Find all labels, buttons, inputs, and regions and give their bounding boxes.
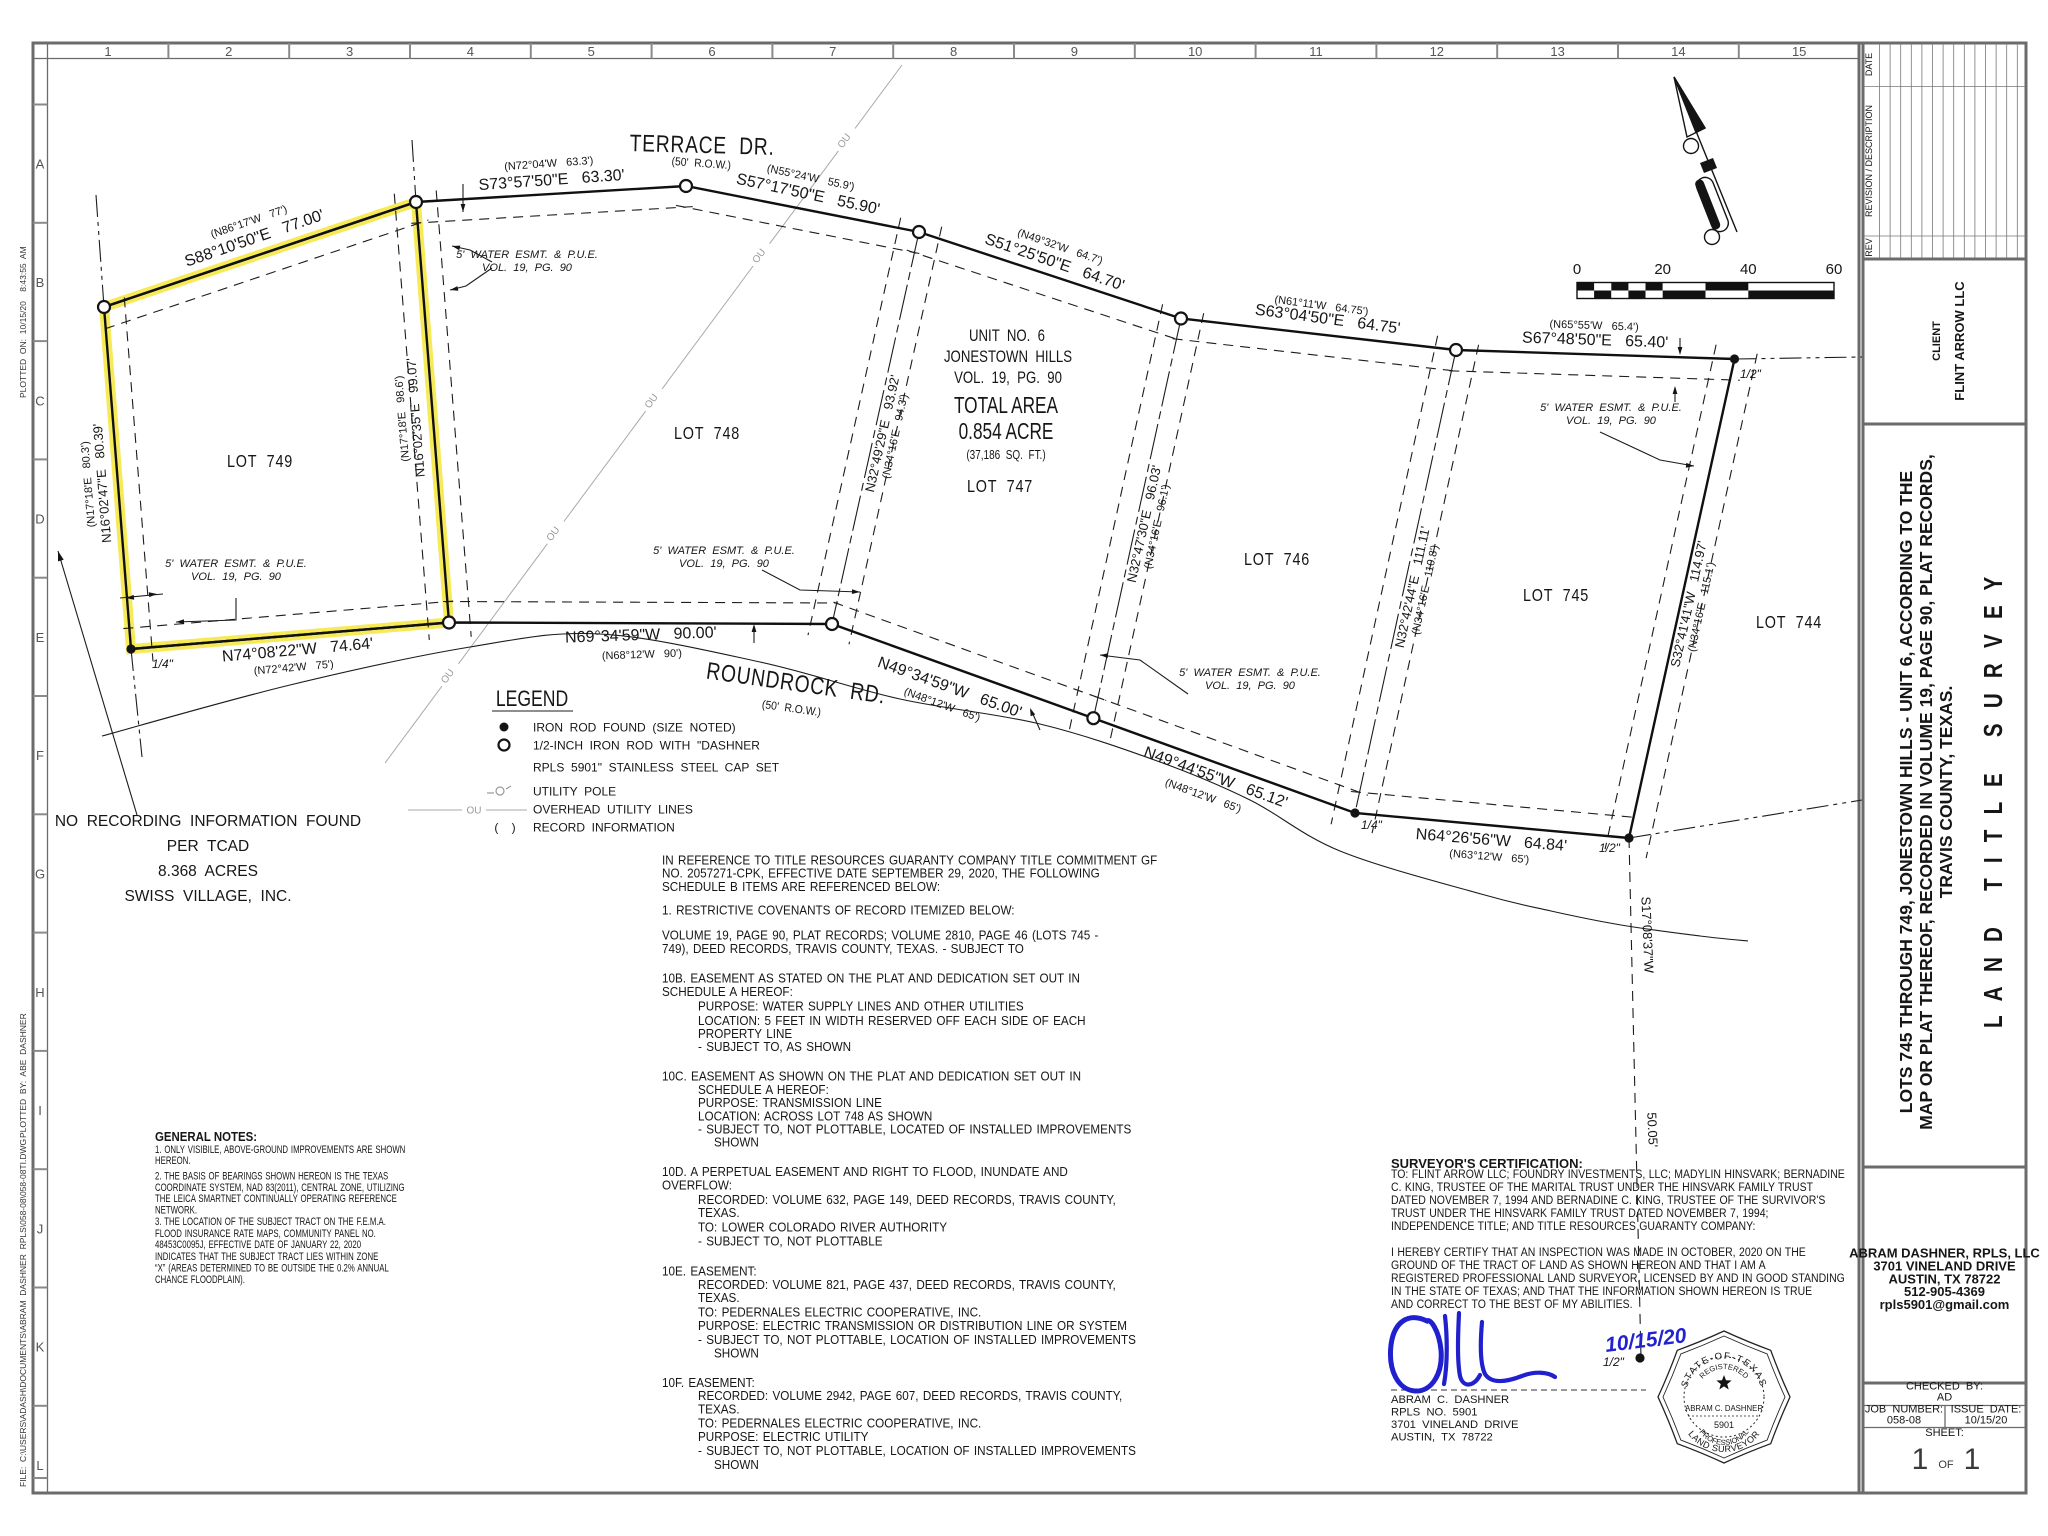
svg-text:RPLS NO. 5901: RPLS NO. 5901: [1391, 1407, 1477, 1419]
svg-text:5: 5: [588, 44, 595, 59]
svg-text:I: I: [38, 1103, 42, 1118]
svg-text:H: H: [35, 985, 44, 1000]
svg-text:- SUBJECT TO, NOT PLOTTABLE: - SUBJECT TO, NOT PLOTTABLE: [698, 1234, 883, 1249]
svg-text:1. RESTRICTIVE COVENANTS OF RE: 1. RESTRICTIVE COVENANTS OF RECORD ITEMI…: [662, 903, 1015, 918]
svg-text:1: 1: [1912, 1443, 1929, 1476]
svg-text:1/4": 1/4": [152, 657, 174, 671]
svg-text:TEXAS.: TEXAS.: [698, 1290, 740, 1305]
svg-text:G: G: [35, 867, 45, 882]
svg-text:749), DEED RECORDS, TRAVIS COU: 749), DEED RECORDS, TRAVIS COUNTY, TEXAS…: [662, 941, 1024, 956]
svg-text:HEREON.: HEREON.: [155, 1155, 190, 1168]
svg-text:SCHEDULE A HEREOF:: SCHEDULE A HEREOF:: [662, 984, 793, 999]
svg-text:6: 6: [708, 44, 715, 59]
svg-text:LOT 749: LOT 749: [227, 452, 293, 472]
svg-text:UNIT NO. 6: UNIT NO. 6: [969, 327, 1045, 346]
svg-text:13: 13: [1550, 44, 1564, 59]
svg-text:TOTAL AREA: TOTAL AREA: [954, 394, 1058, 419]
svg-text:F: F: [36, 748, 44, 763]
svg-text:SCHEDULE B ITEMS ARE REFERENCE: SCHEDULE B ITEMS ARE REFERENCED BELOW:: [662, 879, 940, 894]
svg-text:0.854 ACRE: 0.854 ACRE: [959, 420, 1054, 445]
svg-text:GROUND OF THE TRACT OF LAND AS: GROUND OF THE TRACT OF LAND AS SHOWN HER…: [1391, 1259, 1766, 1272]
svg-text:3: 3: [346, 44, 353, 59]
svg-text:1/2": 1/2": [1603, 1355, 1625, 1369]
svg-text:20: 20: [1654, 261, 1671, 278]
svg-text:RECORDED: VOLUME 821, PAGE 437: RECORDED: VOLUME 821, PAGE 437, DEED REC…: [698, 1277, 1116, 1292]
svg-text:5' WATER ESMT. & P.U.E.: 5' WATER ESMT. & P.U.E.: [456, 249, 598, 261]
svg-text:5' WATER ESMT. & P.U.E.: 5' WATER ESMT. & P.U.E.: [1540, 402, 1682, 414]
svg-text:VOL. 19, PG. 90: VOL. 19, PG. 90: [679, 558, 770, 570]
svg-text:LEGEND: LEGEND: [496, 687, 568, 711]
svg-text:8: 8: [950, 44, 957, 59]
svg-text:LOT 747: LOT 747: [967, 477, 1033, 497]
svg-text:50.05': 50.05': [1644, 1112, 1661, 1148]
svg-text:5' WATER ESMT. & P.U.E.: 5' WATER ESMT. & P.U.E.: [1179, 667, 1321, 679]
svg-text:IRON ROD FOUND (SIZE NOTED: IRON ROD FOUND (SIZE NOTED): [533, 721, 736, 735]
svg-text:SWISS VILLAGE, INC.: SWISS VILLAGE, INC.: [124, 888, 291, 905]
svg-text:- SUBJECT TO, NOT PLOTTABLE, L: - SUBJECT TO, NOT PLOTTABLE, LOCATED OF …: [698, 1122, 1131, 1137]
svg-text:PURPOSE: ELECTRIC TRANSMISSION: PURPOSE: ELECTRIC TRANSMISSION OR DISTRI…: [698, 1319, 1127, 1334]
svg-text:C. KING, TRUSTEE OF THE MARITA: C. KING, TRUSTEE OF THE MARITAL TRUST UN…: [1391, 1181, 1813, 1194]
svg-text:40: 40: [1740, 261, 1757, 278]
svg-text:CHANCE FLOODPLAIN).: CHANCE FLOODPLAIN).: [155, 1274, 245, 1287]
svg-text:SHOWN: SHOWN: [714, 1457, 759, 1472]
svg-text:TERRACE DR.: TERRACE DR.: [629, 129, 775, 160]
svg-text:TO: FLINT ARROW LLC; FOUNDRY I: TO: FLINT ARROW LLC; FOUNDRY INVESTMENTS…: [1391, 1168, 1845, 1181]
svg-text:PER TCAD: PER TCAD: [167, 838, 249, 855]
svg-text:GENERAL NOTES:: GENERAL NOTES:: [155, 1129, 257, 1144]
svg-text:3701 VINELAND DRIVE: 3701 VINELAND DRIVE: [1391, 1419, 1518, 1431]
svg-text:1. ONLY VISIBILE, ABOVE-GROUND: 1. ONLY VISIBILE, ABOVE-GROUND IMPROVEME…: [155, 1144, 405, 1157]
svg-text:- SUBJECT TO, NOT PLOTTABLE, L: - SUBJECT TO, NOT PLOTTABLE, LOCATION OF…: [698, 1443, 1136, 1458]
svg-text:OVERHEAD UTILITY LINES: OVERHEAD UTILITY LINES: [533, 803, 693, 817]
svg-text:(37,186 SQ. FT.): (37,186 SQ. FT.): [966, 449, 1046, 462]
svg-text:LOTS 745 THROUGH 749, JONESTOW: LOTS 745 THROUGH 749, JONESTOWN HILLS - …: [1896, 471, 1916, 1113]
svg-text:VOL. 19, PG. 90: VOL. 19, PG. 90: [1566, 415, 1657, 427]
svg-text:VOL. 19, PG. 90: VOL. 19, PG. 90: [482, 262, 573, 274]
svg-text:FLINT ARROW LLC: FLINT ARROW LLC: [1952, 281, 1967, 401]
svg-text:IN THE STATE OF TEXAS; AND THA: IN THE STATE OF TEXAS; AND THAT THE INFO…: [1391, 1285, 1813, 1298]
svg-text:60: 60: [1826, 261, 1843, 278]
svg-text:B: B: [36, 275, 45, 290]
svg-text:DATED NOVEMBER 7, 1994 AND BER: DATED NOVEMBER 7, 1994 AND BERNADINE C. …: [1391, 1194, 1825, 1207]
svg-text:PURPOSE: ELECTRIC UTILITY: PURPOSE: ELECTRIC UTILITY: [698, 1429, 868, 1444]
svg-text:15: 15: [1792, 44, 1806, 59]
svg-text:J: J: [37, 1221, 44, 1236]
svg-text:OVERFLOW:: OVERFLOW:: [662, 1178, 732, 1193]
svg-text:K: K: [36, 1340, 45, 1355]
svg-text:RPLS 5901" STAINLESS STEEL: RPLS 5901" STAINLESS STEEL CAP SET: [533, 761, 780, 775]
svg-text:TRAVIS COUNTY, TEXAS.: TRAVIS COUNTY, TEXAS.: [1936, 686, 1956, 899]
svg-text:11: 11: [1309, 44, 1323, 59]
svg-text:rpls5901@gmail.com: rpls5901@gmail.com: [1880, 1297, 2010, 1312]
svg-text:NETWORK.: NETWORK.: [155, 1204, 197, 1217]
svg-text:LOT 744: LOT 744: [1756, 613, 1822, 633]
svg-text:REV: REV: [1864, 238, 1874, 257]
svg-text:RECORD INFORMATION: RECORD INFORMATION: [533, 821, 675, 835]
svg-text:12: 12: [1430, 44, 1444, 59]
svg-text:SHOWN: SHOWN: [714, 1346, 759, 1361]
svg-text:UTILITY POLE: UTILITY POLE: [533, 785, 616, 799]
svg-text:RECORDED: VOLUME 2942, PAGE 60: RECORDED: VOLUME 2942, PAGE 607, DEED RE…: [698, 1388, 1122, 1403]
svg-text:TEXAS.: TEXAS.: [698, 1402, 740, 1417]
svg-text:OU: OU: [467, 806, 482, 817]
svg-text:DATE: DATE: [1864, 53, 1874, 76]
svg-text:14: 14: [1671, 44, 1685, 59]
svg-text:LOT 745: LOT 745: [1523, 586, 1589, 606]
svg-text:- SUBJECT TO, AS SHOWN: - SUBJECT TO, AS SHOWN: [698, 1040, 851, 1055]
svg-text:PLOTTED BY: ABE DASHNER: PLOTTED BY: ABE DASHNER: [18, 1013, 28, 1138]
svg-text:LOT 746: LOT 746: [1244, 550, 1310, 570]
svg-text:VOL. 19, PG. 90: VOL. 19, PG. 90: [954, 369, 1062, 388]
svg-text:9: 9: [1071, 44, 1078, 59]
svg-text:TO: PEDERNALES ELECTRIC COOPER: TO: PEDERNALES ELECTRIC COOPERATIVE, INC…: [698, 1305, 981, 1320]
svg-text:RECORDED: VOLUME 632, PAGE 149: RECORDED: VOLUME 632, PAGE 149, DEED REC…: [698, 1192, 1116, 1207]
svg-text:CLIENT: CLIENT: [1931, 321, 1943, 361]
svg-text:ABRAM C. DASHNER: ABRAM C. DASHNER: [1685, 1404, 1763, 1413]
svg-text:JONESTOWN HILLS: JONESTOWN HILLS: [944, 348, 1072, 367]
svg-text:5' WATER ESMT. & P.U.E.: 5' WATER ESMT. & P.U.E.: [165, 558, 307, 570]
svg-text:INDEPENDENCE TITLE; AND TITLE: INDEPENDENCE TITLE; AND TITLE RESOURCES …: [1391, 1220, 1755, 1233]
svg-text:10: 10: [1188, 44, 1202, 59]
svg-text:D: D: [35, 512, 44, 527]
svg-text:TRUST UNDER THE HINSVARK FAMIL: TRUST UNDER THE HINSVARK FAMILY TRUST DA…: [1391, 1207, 1768, 1220]
svg-text:REVISION / DESCRIPTION: REVISION / DESCRIPTION: [1864, 105, 1874, 217]
svg-text:SHEET:: SHEET:: [1925, 1427, 1964, 1439]
svg-text:AD: AD: [1937, 1392, 1952, 1404]
svg-text:2: 2: [225, 44, 232, 59]
svg-text:TO: LOWER COLORADO RIVER AUTHO: TO: LOWER COLORADO RIVER AUTHORITY: [698, 1220, 947, 1235]
svg-text:- SUBJECT TO, NOT PLOTTABLE, L: - SUBJECT TO, NOT PLOTTABLE, LOCATION OF…: [698, 1333, 1136, 1348]
svg-text:NO RECORDING INFORMATION FO: NO RECORDING INFORMATION FOUND: [55, 813, 361, 830]
svg-text:REGISTERED PROFESSIONAL LAND S: REGISTERED PROFESSIONAL LAND SURVEYOR, L…: [1391, 1272, 1845, 1285]
svg-text:AND CORRECT TO THE BEST OF MY: AND CORRECT TO THE BEST OF MY ABILITIES.: [1391, 1298, 1633, 1311]
svg-text:058-08: 058-08: [1887, 1415, 1921, 1427]
svg-text:E: E: [36, 630, 45, 645]
svg-text:1/2-INCH IRON ROD WITH "DA: 1/2-INCH IRON ROD WITH "DASHNER: [533, 739, 760, 753]
svg-text:C: C: [35, 393, 44, 408]
svg-text:ABRAM C. DASHNER: ABRAM C. DASHNER: [1391, 1394, 1509, 1406]
svg-text:I HEREBY CERTIFY THAT AN INSPE: I HEREBY CERTIFY THAT AN INSPECTION WAS …: [1391, 1246, 1806, 1259]
svg-text:SHOWN: SHOWN: [714, 1135, 759, 1150]
svg-text:MAP OR PLAT THEREOF, RECORDED: MAP OR PLAT THEREOF, RECORDED IN VOLUME …: [1916, 454, 1936, 1129]
svg-text:PURPOSE: WATER SUPPLY LINES AN: PURPOSE: WATER SUPPLY LINES AND OTHER UT…: [698, 999, 1024, 1014]
svg-text:VOL. 19, PG. 90: VOL. 19, PG. 90: [191, 571, 282, 583]
svg-text:0: 0: [1573, 261, 1581, 278]
svg-text:1: 1: [104, 44, 111, 59]
svg-text:1/2": 1/2": [1599, 841, 1621, 855]
svg-text:1/2": 1/2": [1740, 367, 1762, 381]
svg-text:L A N D T I T L E S U R V: L A N D T I T L E S U R V E Y: [1978, 572, 2008, 1028]
svg-text:5' WATER ESMT. & P.U.E.: 5' WATER ESMT. & P.U.E.: [653, 545, 795, 557]
svg-text:A: A: [36, 157, 45, 172]
svg-text:7: 7: [829, 44, 836, 59]
svg-text:AUSTIN, TX 78722: AUSTIN, TX 78722: [1391, 1432, 1493, 1444]
svg-text:1/4": 1/4": [1361, 818, 1383, 832]
svg-text:VOL. 19, PG. 90: VOL. 19, PG. 90: [1205, 680, 1296, 692]
svg-text:1: 1: [1964, 1443, 1981, 1476]
svg-text:LOT 748: LOT 748: [674, 424, 740, 444]
svg-text:5901: 5901: [1714, 1420, 1734, 1430]
svg-text:FILE: C:\USERS\ADASH\DOCUMENT: FILE: C:\USERS\ADASH\DOCUMENTS\ABRAM DAS…: [18, 1139, 28, 1487]
svg-text:TEXAS.: TEXAS.: [698, 1206, 740, 1221]
svg-text:8.368 ACRES: 8.368 ACRES: [158, 863, 258, 880]
svg-text:OF: OF: [1938, 1459, 1954, 1471]
svg-text:( ): ( ): [494, 821, 515, 835]
svg-text:L: L: [36, 1458, 43, 1473]
svg-text:PLOTTED ON: 10/15/20 8:43: PLOTTED ON: 10/15/20 8:43:55 AM: [18, 246, 28, 398]
svg-text:10/15/20: 10/15/20: [1965, 1415, 2008, 1427]
svg-text:4: 4: [467, 44, 474, 59]
